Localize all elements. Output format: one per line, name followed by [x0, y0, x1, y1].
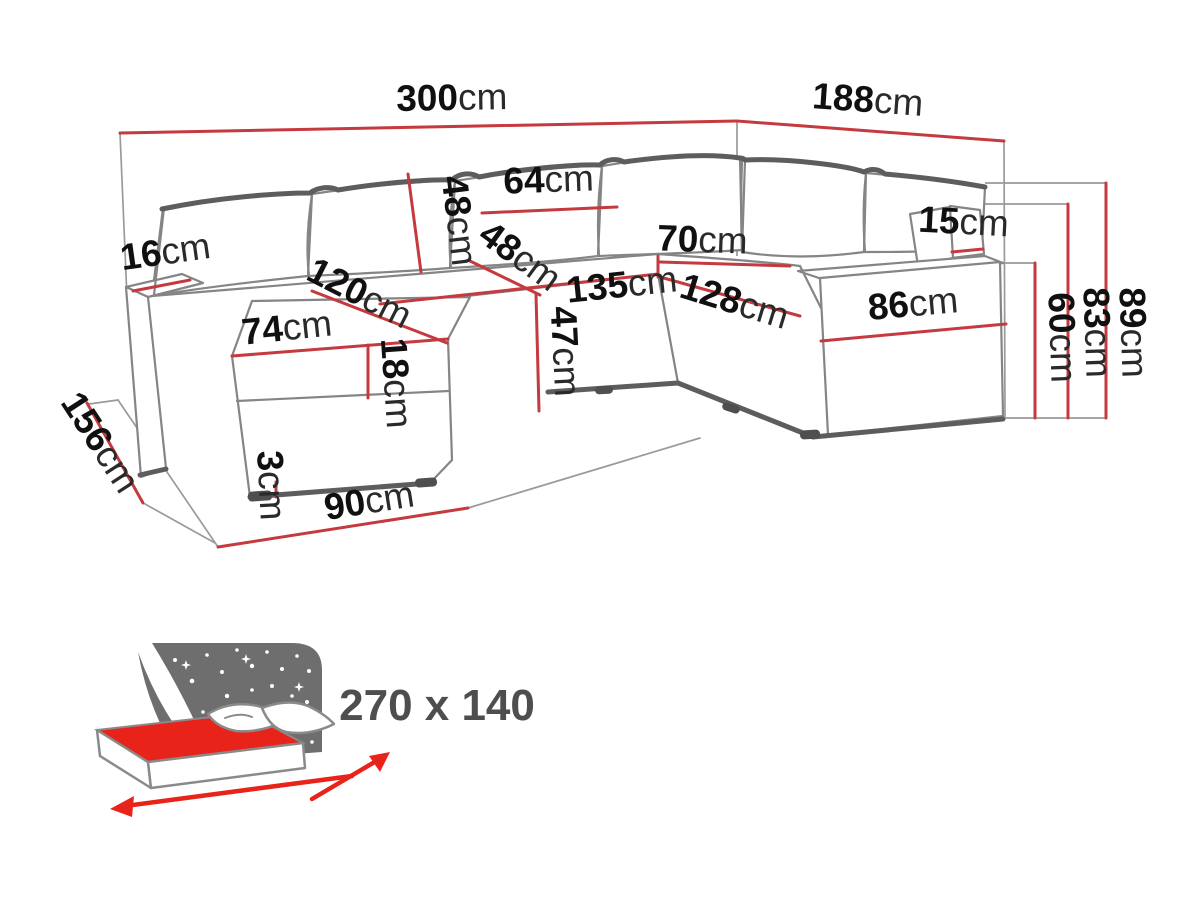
star	[220, 670, 224, 674]
back-pillow-right-1	[742, 160, 866, 257]
dim-label-seat-height: 47cm	[543, 305, 589, 398]
star	[280, 667, 284, 671]
sofa-dimension-diagram: 300cm 188cm 16cm 48cm 64cm 48cm 70cm 15c…	[0, 0, 1200, 900]
star	[310, 740, 314, 744]
dim-label-total-depth-right: 188cm	[811, 75, 925, 124]
bed-width-arrowhead	[110, 796, 134, 817]
dim-line-total-depth-right	[737, 121, 1004, 141]
star	[270, 684, 274, 688]
star	[265, 650, 269, 654]
star	[250, 688, 254, 692]
sleeping-function-icon	[97, 643, 390, 817]
star	[290, 694, 294, 698]
star	[295, 654, 299, 658]
dim-label-cushion-thickness: 18cm	[373, 337, 420, 430]
left-arm-front-face	[126, 287, 166, 477]
star	[250, 664, 254, 668]
dim-label-leg-height: 3cm	[249, 449, 294, 521]
dim-label-total-height: 89cm	[1111, 287, 1155, 379]
diagram-canvas: 300cm 188cm 16cm 48cm 64cm 48cm 70cm 15c…	[0, 0, 1200, 900]
dim-label-corner-seat-width: 70cm	[657, 217, 749, 261]
floor-tick-front	[145, 504, 215, 543]
sofa-leg	[595, 386, 613, 395]
star	[180, 700, 184, 704]
star	[201, 710, 205, 714]
dim-label-back-pillow-width: 64cm	[503, 157, 595, 201]
star	[235, 648, 239, 652]
star	[173, 658, 177, 662]
star	[205, 653, 209, 657]
dim-label-arm-back-pillow: 15cm	[917, 199, 1010, 245]
dim-label-total-width: 300cm	[396, 76, 508, 119]
star	[305, 700, 309, 704]
star	[190, 679, 195, 684]
sofa-leg	[415, 477, 438, 488]
sleeping-area-label: 270 x 140	[339, 681, 535, 730]
star	[307, 669, 311, 673]
sofa-leg	[800, 429, 821, 439]
dim-line-total-width	[120, 121, 737, 133]
dim-label-right-arm-length: 86cm	[866, 279, 960, 328]
star	[225, 694, 229, 698]
